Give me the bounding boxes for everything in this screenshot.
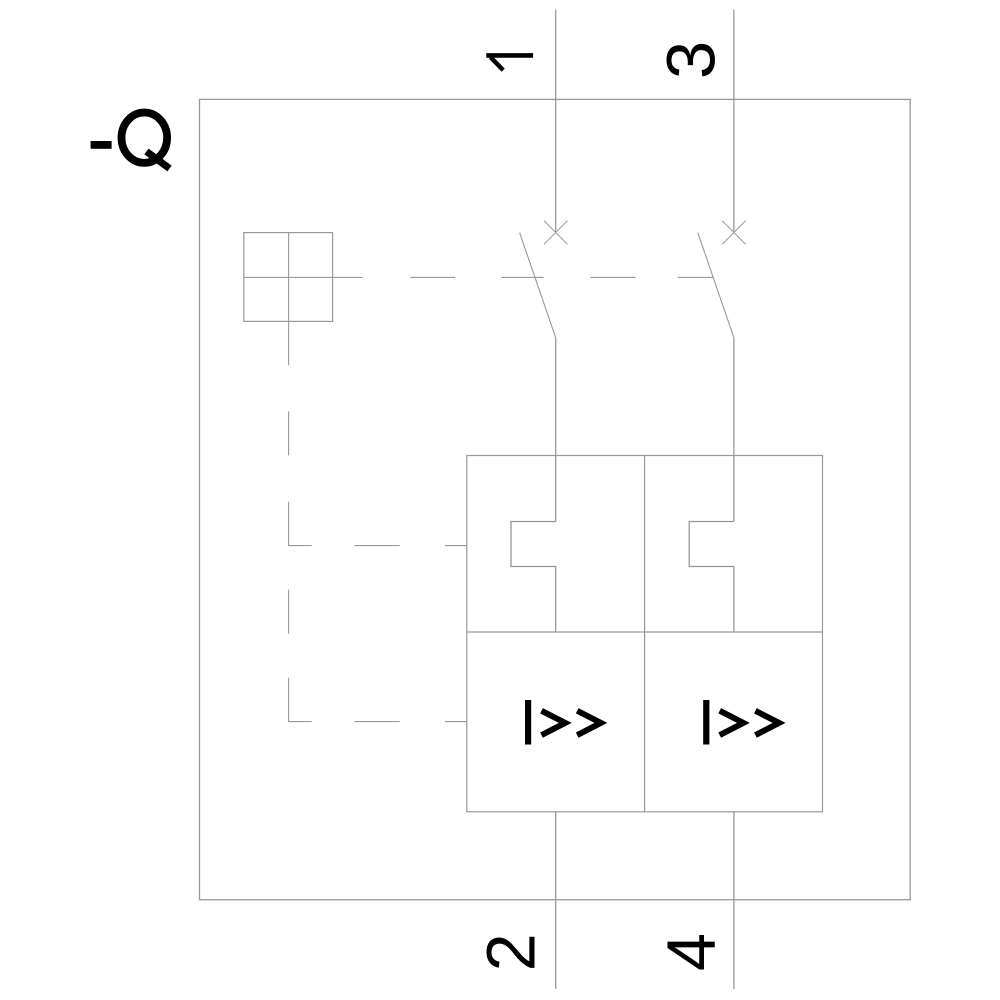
svg-text:4: 4 xyxy=(652,933,729,971)
svg-text:3: 3 xyxy=(653,41,730,79)
svg-text:2: 2 xyxy=(472,933,549,971)
